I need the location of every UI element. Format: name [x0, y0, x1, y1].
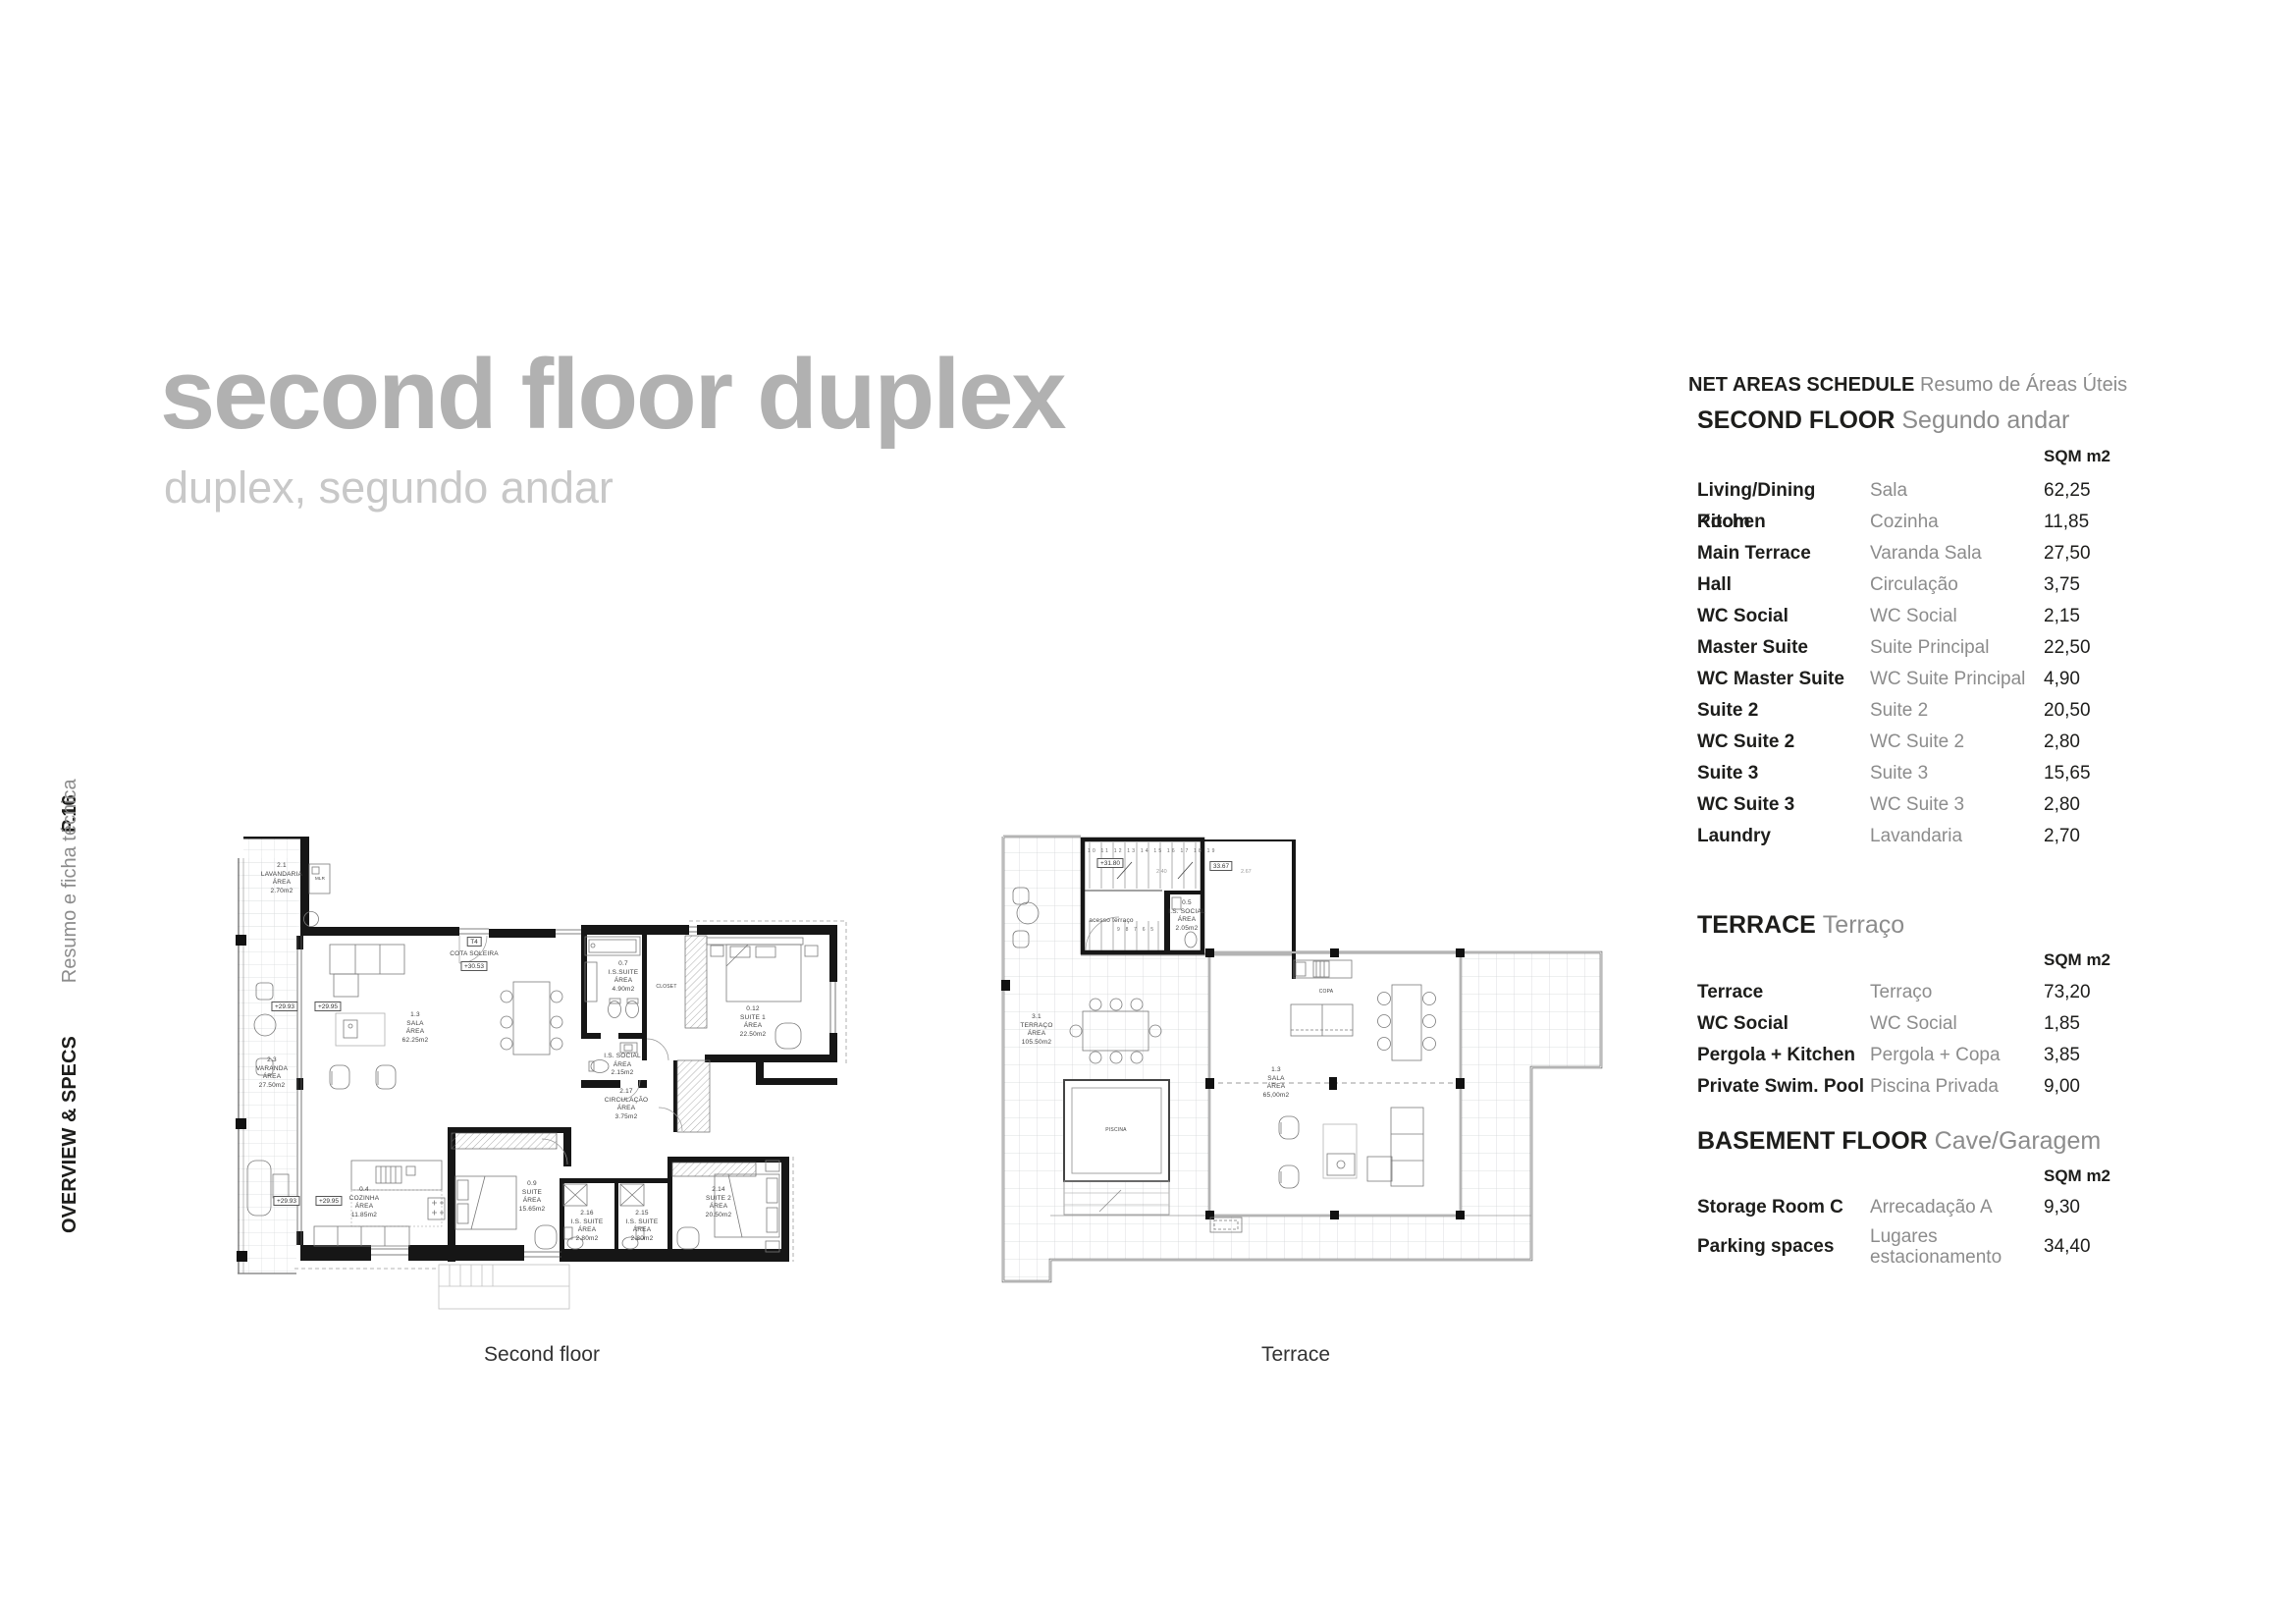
row-value: 20,50 [2044, 695, 2109, 727]
row-value: 27,50 [2044, 538, 2109, 569]
row-label-pt: Suite 3 [1870, 758, 2044, 789]
row-label-pt: Varanda Sala [1870, 538, 2044, 569]
section-basement-name-pt: Cave/Garagem [1935, 1127, 2102, 1155]
row-label-pt: Suite Principal [1870, 632, 2044, 664]
row-label-pt: Pergola + Copa [1870, 1040, 2044, 1071]
label-terraco: 3.1 TERRAÇO ÁREA 105.50m2 [1020, 1013, 1052, 1047]
label-circulacao: 2.17 CIRCULAÇÃO ÁREA 3.75m2 [605, 1088, 649, 1121]
basement-rows: Storage Room CArrecadação A9,30 Parking … [1697, 1192, 2109, 1271]
floorplan-second-floor: 2.1 LAVANDARIA ÁREA 2.70m2 MLR 2.3 VARAN… [236, 837, 869, 1332]
floorplan-second-floor-drawing [236, 837, 869, 1332]
sidebar-section-en: OVERVIEW & SPECS [59, 1036, 80, 1233]
sqm-header-1: SQM m2 [2044, 447, 2110, 466]
label-cota-soleira: COTA SOLEIRA [450, 950, 499, 959]
section-second-floor-header: SECOND FLOOR Segundo andar [1697, 406, 2069, 435]
row-label-pt: Terraço [1870, 977, 2044, 1008]
row-label-pt: Lugares estacionamento [1870, 1223, 2044, 1271]
row-label-pt: Piscina Privada [1870, 1071, 2044, 1103]
row-label: Pergola + Kitchen [1697, 1040, 1870, 1071]
row-label: WC Master Suite [1697, 664, 1870, 695]
section-terrace-header: TERRACE Terraço [1697, 911, 1904, 940]
row-value: 2,80 [2044, 727, 2109, 758]
row-value: 73,20 [2044, 977, 2109, 1008]
row-value: 3,85 [2044, 1040, 2109, 1071]
sala-furniture [1279, 960, 1436, 1188]
row-label: WC Social [1697, 1008, 1870, 1040]
label-suite-09: 0.9 SUITE ÁREA 15.65m2 [519, 1180, 546, 1214]
row-label: Storage Room C [1697, 1192, 1870, 1223]
row-value: 3,75 [2044, 569, 2109, 601]
terrace-rows: TerraceTerraço73,20 WC SocialWC Social1,… [1697, 977, 2109, 1103]
sqm-header-2: SQM m2 [2044, 950, 2110, 970]
row-label: WC Social [1697, 601, 1870, 632]
label-t4: T4 [467, 937, 482, 947]
sidebar-section-pt: Resumo e ficha técnica [59, 779, 80, 983]
label-varanda: 2.3 VARANDA ÁREA 27.50m2 [256, 1056, 288, 1090]
row-label-pt: WC Social [1870, 1008, 2044, 1040]
label-lavandaria: 2.1 LAVANDARIA ÁREA 2.70m2 [261, 862, 302, 895]
label-dim-267: 2.67 [1241, 869, 1252, 875]
row-label: WC Suite 3 [1697, 789, 1870, 821]
label-3180: +31.80 [1096, 858, 1123, 868]
label-level-2993-b: +29.93 [273, 1196, 299, 1206]
row-label: Private Swim. Pool [1697, 1071, 1870, 1103]
row-label-pt: Arrecadação A [1870, 1192, 2044, 1223]
sala-glass-box [1205, 948, 1465, 1219]
sqm-header-3: SQM m2 [2044, 1166, 2110, 1186]
label-is-social: I.S. SOCIAL ÁREA 2.15m2 [604, 1053, 641, 1078]
row-value: 2,70 [2044, 821, 2109, 852]
label-3367: 33.67 [1209, 861, 1232, 871]
label-cota-value: +30.53 [460, 961, 487, 971]
row-value: 2,80 [2044, 789, 2109, 821]
label-suite2: 2.14 SUITE 2 ÁREA 20.50m2 [706, 1186, 732, 1219]
row-label: Master Suite [1697, 632, 1870, 664]
label-steps-down: 9 8 7 6 5 [1117, 927, 1155, 933]
section-second-floor-name-pt: Segundo andar [1901, 406, 2069, 434]
label-is-suite-216: 2.16 I.S. SUITE ÁREA 2.80m2 [571, 1210, 604, 1243]
row-label-pt: Circulação [1870, 569, 2044, 601]
row-label-pt: WC Suite Principal [1870, 664, 2044, 695]
row-value: 62,25 [2044, 475, 2109, 507]
label-piscina: PISCINA [1105, 1127, 1126, 1134]
row-label: Parking spaces [1697, 1223, 1870, 1271]
row-label-pt: Sala [1870, 475, 2044, 507]
row-value: 9,00 [2044, 1071, 2109, 1103]
row-value: 1,85 [2044, 1008, 2109, 1040]
second-floor-rows: Living/Dining RoomSala62,25 KitchenCozin… [1697, 475, 2109, 852]
row-value: 22,50 [2044, 632, 2109, 664]
row-label-pt: Cozinha [1870, 507, 2044, 538]
row-label: Hall [1697, 569, 1870, 601]
label-is-social-terrace: 0.5 I.S. SOCIAL ÁREA 2.05m2 [1168, 899, 1205, 933]
row-label: Laundry [1697, 821, 1870, 852]
section-basement-name: BASEMENT FLOOR [1697, 1127, 1928, 1155]
row-label-pt: Lavandaria [1870, 821, 2044, 852]
row-label: Living/Dining Room [1697, 475, 1870, 507]
label-sala: 1.3 SALA ÁREA 62.25m2 [402, 1011, 429, 1045]
row-label: Terrace [1697, 977, 1870, 1008]
label-is-suite-215: 2.15 I.S. SUITE ÁREA 2.80m2 [626, 1210, 659, 1243]
section-basement-header: BASEMENT FLOOR Cave/Garagem [1697, 1127, 2101, 1156]
label-suite1: 0.12 SUITE 1 ÁREA 22.50m2 [740, 1005, 767, 1039]
row-label-pt: WC Suite 3 [1870, 789, 2044, 821]
row-value: 34,40 [2044, 1223, 2109, 1271]
stairs-below [439, 1265, 569, 1309]
label-acesso-terraco: acesso terraço [1089, 917, 1133, 926]
label-mlr: MLR [315, 876, 325, 882]
label-level-2993-a: +29.93 [271, 1001, 297, 1011]
row-label: Suite 2 [1697, 695, 1870, 727]
page-subtitle: duplex, segundo andar [164, 465, 614, 510]
label-level-2995-b: +29.95 [315, 1196, 342, 1206]
label-closet: CLOSET [656, 984, 676, 991]
floorplan-terrace-drawing [1001, 835, 1649, 1330]
section-second-floor-name: SECOND FLOOR [1697, 406, 1895, 434]
caption-second-floor: Second floor [434, 1343, 650, 1367]
row-label: Main Terrace [1697, 538, 1870, 569]
row-value: 15,65 [2044, 758, 2109, 789]
section-terrace-name-pt: Terraço [1823, 911, 1904, 939]
label-cozinha: 0.4 COZINHA ÁREA 11.85m2 [349, 1186, 380, 1219]
row-label: Kitchen [1697, 507, 1870, 538]
label-steps-up: 10 11 12 13 14 15 16 17 18 19 [1088, 848, 1217, 854]
row-label-pt: WC Suite 2 [1870, 727, 2044, 758]
label-dim-240: 2.40 [1156, 869, 1167, 875]
label-level-2995-a: +29.95 [314, 1001, 341, 1011]
row-value: 11,85 [2044, 507, 2109, 538]
row-label: WC Suite 2 [1697, 727, 1870, 758]
row-label-pt: WC Social [1870, 601, 2044, 632]
caption-terrace: Terrace [1188, 1343, 1404, 1367]
row-value: 9,30 [2044, 1192, 2109, 1223]
floorplan-terrace: +31.80 33.67 2.40 2.67 10 11 12 13 14 15… [1001, 835, 1649, 1330]
schedule-title-pt: Resumo de Áreas Úteis [1920, 374, 2127, 396]
row-value: 4,90 [2044, 664, 2109, 695]
schedule-title-en: NET AREAS SCHEDULE [1688, 374, 1914, 396]
section-terrace-name: TERRACE [1697, 911, 1816, 939]
label-copa: COPA [1319, 989, 1334, 996]
row-label: Suite 3 [1697, 758, 1870, 789]
row-value: 2,15 [2044, 601, 2109, 632]
label-sala-terrace: 1.3 SALA ÁREA 65,00m2 [1263, 1066, 1290, 1100]
row-label-pt: Suite 2 [1870, 695, 2044, 727]
page-title: second floor duplex [160, 346, 1065, 445]
label-is-suite: 0.7 I.S.SUITE ÁREA 4.90m2 [609, 960, 639, 994]
brochure-page: P.16 OVERVIEW & SPECSResumo e ficha técn… [0, 0, 2296, 1624]
sidebar-section-label: OVERVIEW & SPECSResumo e ficha técnica [59, 779, 81, 1233]
schedule-title: NET AREAS SCHEDULE Resumo de Áreas Úteis [1688, 374, 2127, 397]
